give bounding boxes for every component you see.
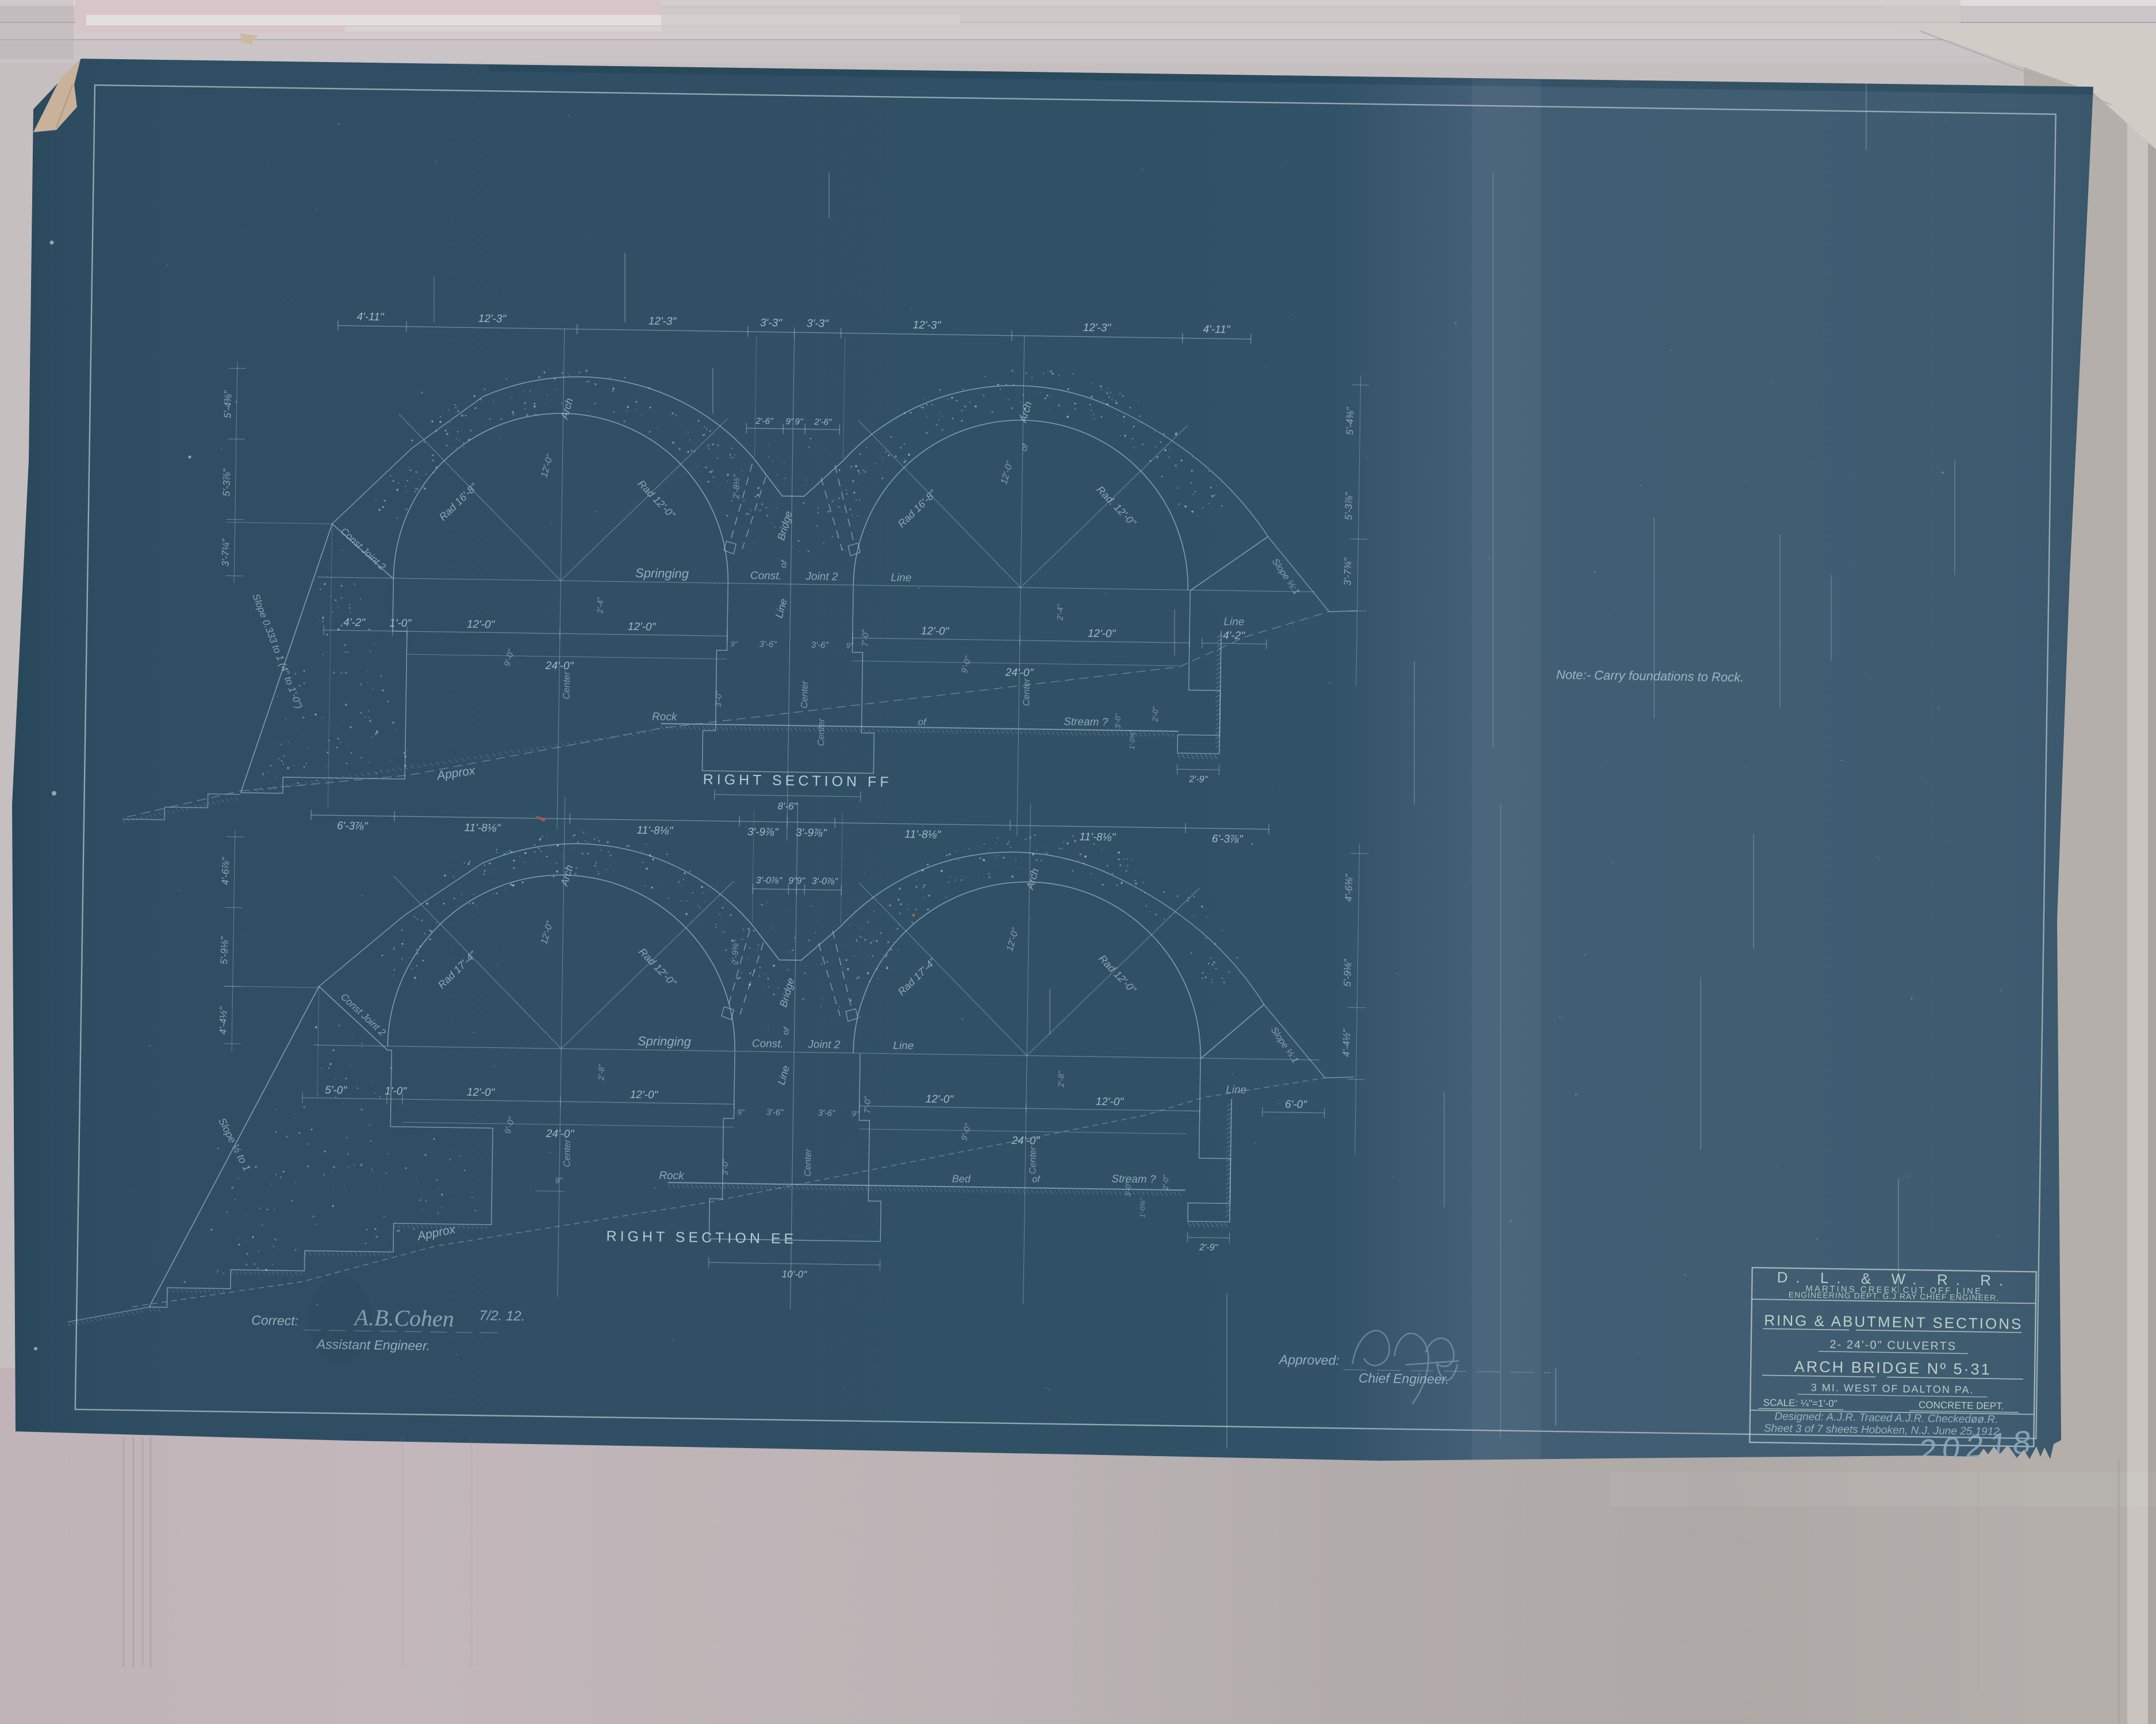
svg-text:2'-8": 2'-8" [596,1063,605,1081]
svg-text:12'-0": 12'-0" [1088,628,1117,640]
svg-text:12'-0": 12'-0" [467,1086,496,1099]
svg-text:Line: Line [1223,616,1244,628]
svg-text:3'-0⅞": 3'-0⅞" [756,876,783,886]
svg-text:5'-3⅞": 5'-3⅞" [221,468,232,496]
svg-text:1'-0": 1'-0" [385,1085,407,1098]
svg-text:2'-6": 2'-6" [814,417,832,427]
svg-text:Line: Line [893,1040,914,1053]
svg-text:Joint 2: Joint 2 [805,570,838,583]
svg-text:12'-3": 12'-3" [478,313,507,325]
svg-text:Center: Center [800,681,810,709]
svg-text:of: of [1032,1174,1041,1184]
svg-text:5'-4⅜": 5'-4⅜" [222,390,233,418]
svg-text:11'-8⅛": 11'-8⅛" [636,824,673,837]
svg-text:3'-6": 3'-6" [811,640,829,650]
svg-text:24'-0": 24'-0" [546,1128,575,1141]
svg-text:3'-0": 3'-0" [713,690,723,707]
svg-text:Approved:: Approved: [1278,1352,1340,1368]
svg-text:2'-4": 2'-4" [1055,604,1064,621]
svg-text:Center: Center [1028,1146,1038,1174]
svg-text:2- 24'-0" CULVERTS: 2- 24'-0" CULVERTS [1829,1338,1956,1353]
svg-text:Joint 2: Joint 2 [807,1039,841,1051]
svg-text:5'-4⅜": 5'-4⅜" [1344,406,1356,435]
svg-text:Center: Center [803,1149,814,1177]
svg-text:11'-8⅛": 11'-8⅛" [464,822,501,835]
svg-text:8'-6": 8'-6" [777,801,797,812]
svg-text:3'-0": 3'-0" [720,1158,730,1175]
svg-text:2'-9": 2'-9" [1188,774,1208,785]
svg-text:7'-0": 7'-0" [863,1096,873,1114]
svg-text:9": 9" [795,417,803,427]
svg-text:1'-0": 1'-0" [389,617,412,630]
svg-text:4'-6⅞": 4'-6⅞" [220,857,231,885]
svg-text:11'-8⅛": 11'-8⅛" [1079,831,1116,844]
svg-text:4'-4½": 4'-4½" [1341,1028,1352,1057]
svg-text:CONCRETE DEPT.: CONCRETE DEPT. [1919,1399,2004,1411]
svg-text:3 MI. WEST OF DALTON PA.: 3 MI. WEST OF DALTON PA. [1811,1382,1974,1396]
svg-text:12'-0": 12'-0" [628,621,657,633]
svg-text:3'-3": 3'-3" [807,317,829,330]
svg-text:2'-9": 2'-9" [1199,1243,1218,1253]
svg-text:9": 9" [846,642,854,650]
svg-text:2'-4": 2'-4" [595,597,604,614]
svg-text:24'-0": 24'-0" [1005,667,1034,679]
svg-text:9": 9" [738,1108,745,1116]
svg-text:4'-2": 4'-2" [343,617,366,629]
svg-text:RIGHT SECTION FF: RIGHT SECTION FF [703,771,892,790]
svg-text:2'-9⅜": 2'-9⅜" [730,940,741,965]
svg-text:12'-0": 12'-0" [926,1093,954,1106]
svg-text:SCALE: ¼"=1'-0": SCALE: ¼"=1'-0" [1763,1397,1837,1409]
svg-text:24'-0": 24'-0" [545,660,574,673]
svg-text:3'-6": 3'-6" [818,1108,836,1118]
svg-text:5'-0": 5'-0" [325,1084,347,1097]
svg-text:11'-8⅛": 11'-8⅛" [904,828,941,841]
svg-text:Note:- Carry foundations to Ro: Note:- Carry foundations to Rock. [1556,667,1744,685]
svg-text:12'-3": 12'-3" [649,315,677,328]
svg-text:Correct:: Correct: [251,1312,298,1328]
svg-text:12'-0": 12'-0" [467,619,496,631]
svg-text:Bed: Bed [952,1173,971,1184]
svg-text:10'-0": 10'-0" [782,1269,808,1280]
svg-text:3'-0⅞": 3'-0⅞" [812,877,839,887]
svg-text:3'-6": 3'-6" [766,1108,784,1118]
svg-text:Center: Center [562,1139,573,1168]
svg-text:Line: Line [1226,1084,1246,1096]
svg-text:1'-0⅝": 1'-0⅝" [1128,729,1137,750]
svg-text:7'-0": 7'-0" [861,629,870,647]
svg-text:RIGHT SECTION EE: RIGHT SECTION EE [606,1228,797,1247]
svg-text:of: of [918,716,927,727]
svg-text:4'-2": 4'-2" [1223,629,1245,642]
svg-text:6'-3⅞": 6'-3⅞" [1212,833,1244,846]
svg-text:4'-11": 4'-11" [1203,324,1231,336]
svg-text:9": 9" [731,640,738,648]
svg-text:2'-8": 2'-8" [1056,1070,1065,1088]
svg-text:3'-3": 3'-3" [760,317,782,329]
svg-text:5'-9⅛": 5'-9⅛" [1342,958,1353,986]
svg-text:12'-0": 12'-0" [921,625,950,638]
svg-text:1'-0⅝": 1'-0⅝" [1138,1197,1147,1218]
svg-text:9": 9" [796,876,805,886]
svg-text:2'-0": 2'-0" [1161,1174,1170,1190]
svg-text:3'-9⅞": 3'-9⅞" [747,826,779,839]
svg-text:Center: Center [816,718,827,746]
svg-text:Stream ?: Stream ? [1111,1173,1156,1185]
svg-text:Center: Center [1022,678,1032,706]
svg-text:12'-3": 12'-3" [1083,322,1112,335]
svg-text:Chief Engineer.: Chief Engineer. [1359,1370,1449,1387]
svg-text:Stream ?: Stream ? [1064,716,1108,728]
svg-text:4'-11": 4'-11" [356,311,385,324]
svg-text:6'-0": 6'-0" [1285,1099,1307,1111]
svg-text:3'-0": 3'-0" [1114,713,1122,728]
svg-text:3'-7¼": 3'-7¼" [220,538,232,566]
svg-text:Const.: Const. [752,1038,784,1050]
svg-text:ARCH BRIDGE Nº 5·31: ARCH BRIDGE Nº 5·31 [1794,1358,1992,1378]
svg-text:4'-6⅜": 4'-6⅜" [1343,873,1355,901]
svg-text:9": 9" [785,417,794,427]
svg-text:24'-0": 24'-0" [1011,1135,1041,1147]
svg-text:3'-9⅞": 3'-9⅞" [796,827,827,839]
svg-text:3'-0": 3'-0" [1123,1181,1132,1196]
svg-text:Springing: Springing [638,1034,692,1049]
svg-text:7/2. 12.: 7/2. 12. [479,1308,525,1324]
svg-text:2'-6": 2'-6" [755,416,773,426]
svg-text:3'-7¾": 3'-7¾" [1342,557,1353,585]
svg-text:Center: Center [562,671,572,700]
svg-text:6'-3⅞": 6'-3⅞" [337,820,369,832]
svg-text:12'-3": 12'-3" [913,319,942,332]
svg-text:3'-6": 3'-6" [759,639,777,649]
svg-text:2'-0": 2'-0" [1151,706,1160,722]
svg-text:Springing: Springing [635,566,689,581]
svg-text:9": 9" [852,1109,860,1118]
svg-text:Const.: Const. [750,570,782,582]
svg-text:Rock: Rock [652,711,678,724]
svg-text:Rock: Rock [659,1170,685,1182]
svg-text:5'-3⅞": 5'-3⅞" [1343,492,1355,520]
svg-text:Line: Line [891,572,911,585]
svg-text:4'-4½": 4'-4½" [217,1006,229,1034]
svg-text:5'-9⅛": 5'-9⅛" [218,936,230,964]
svg-text:9": 9" [555,1176,563,1185]
svg-text:12'-0": 12'-0" [630,1089,659,1101]
svg-text:12'-0": 12'-0" [1096,1096,1125,1108]
